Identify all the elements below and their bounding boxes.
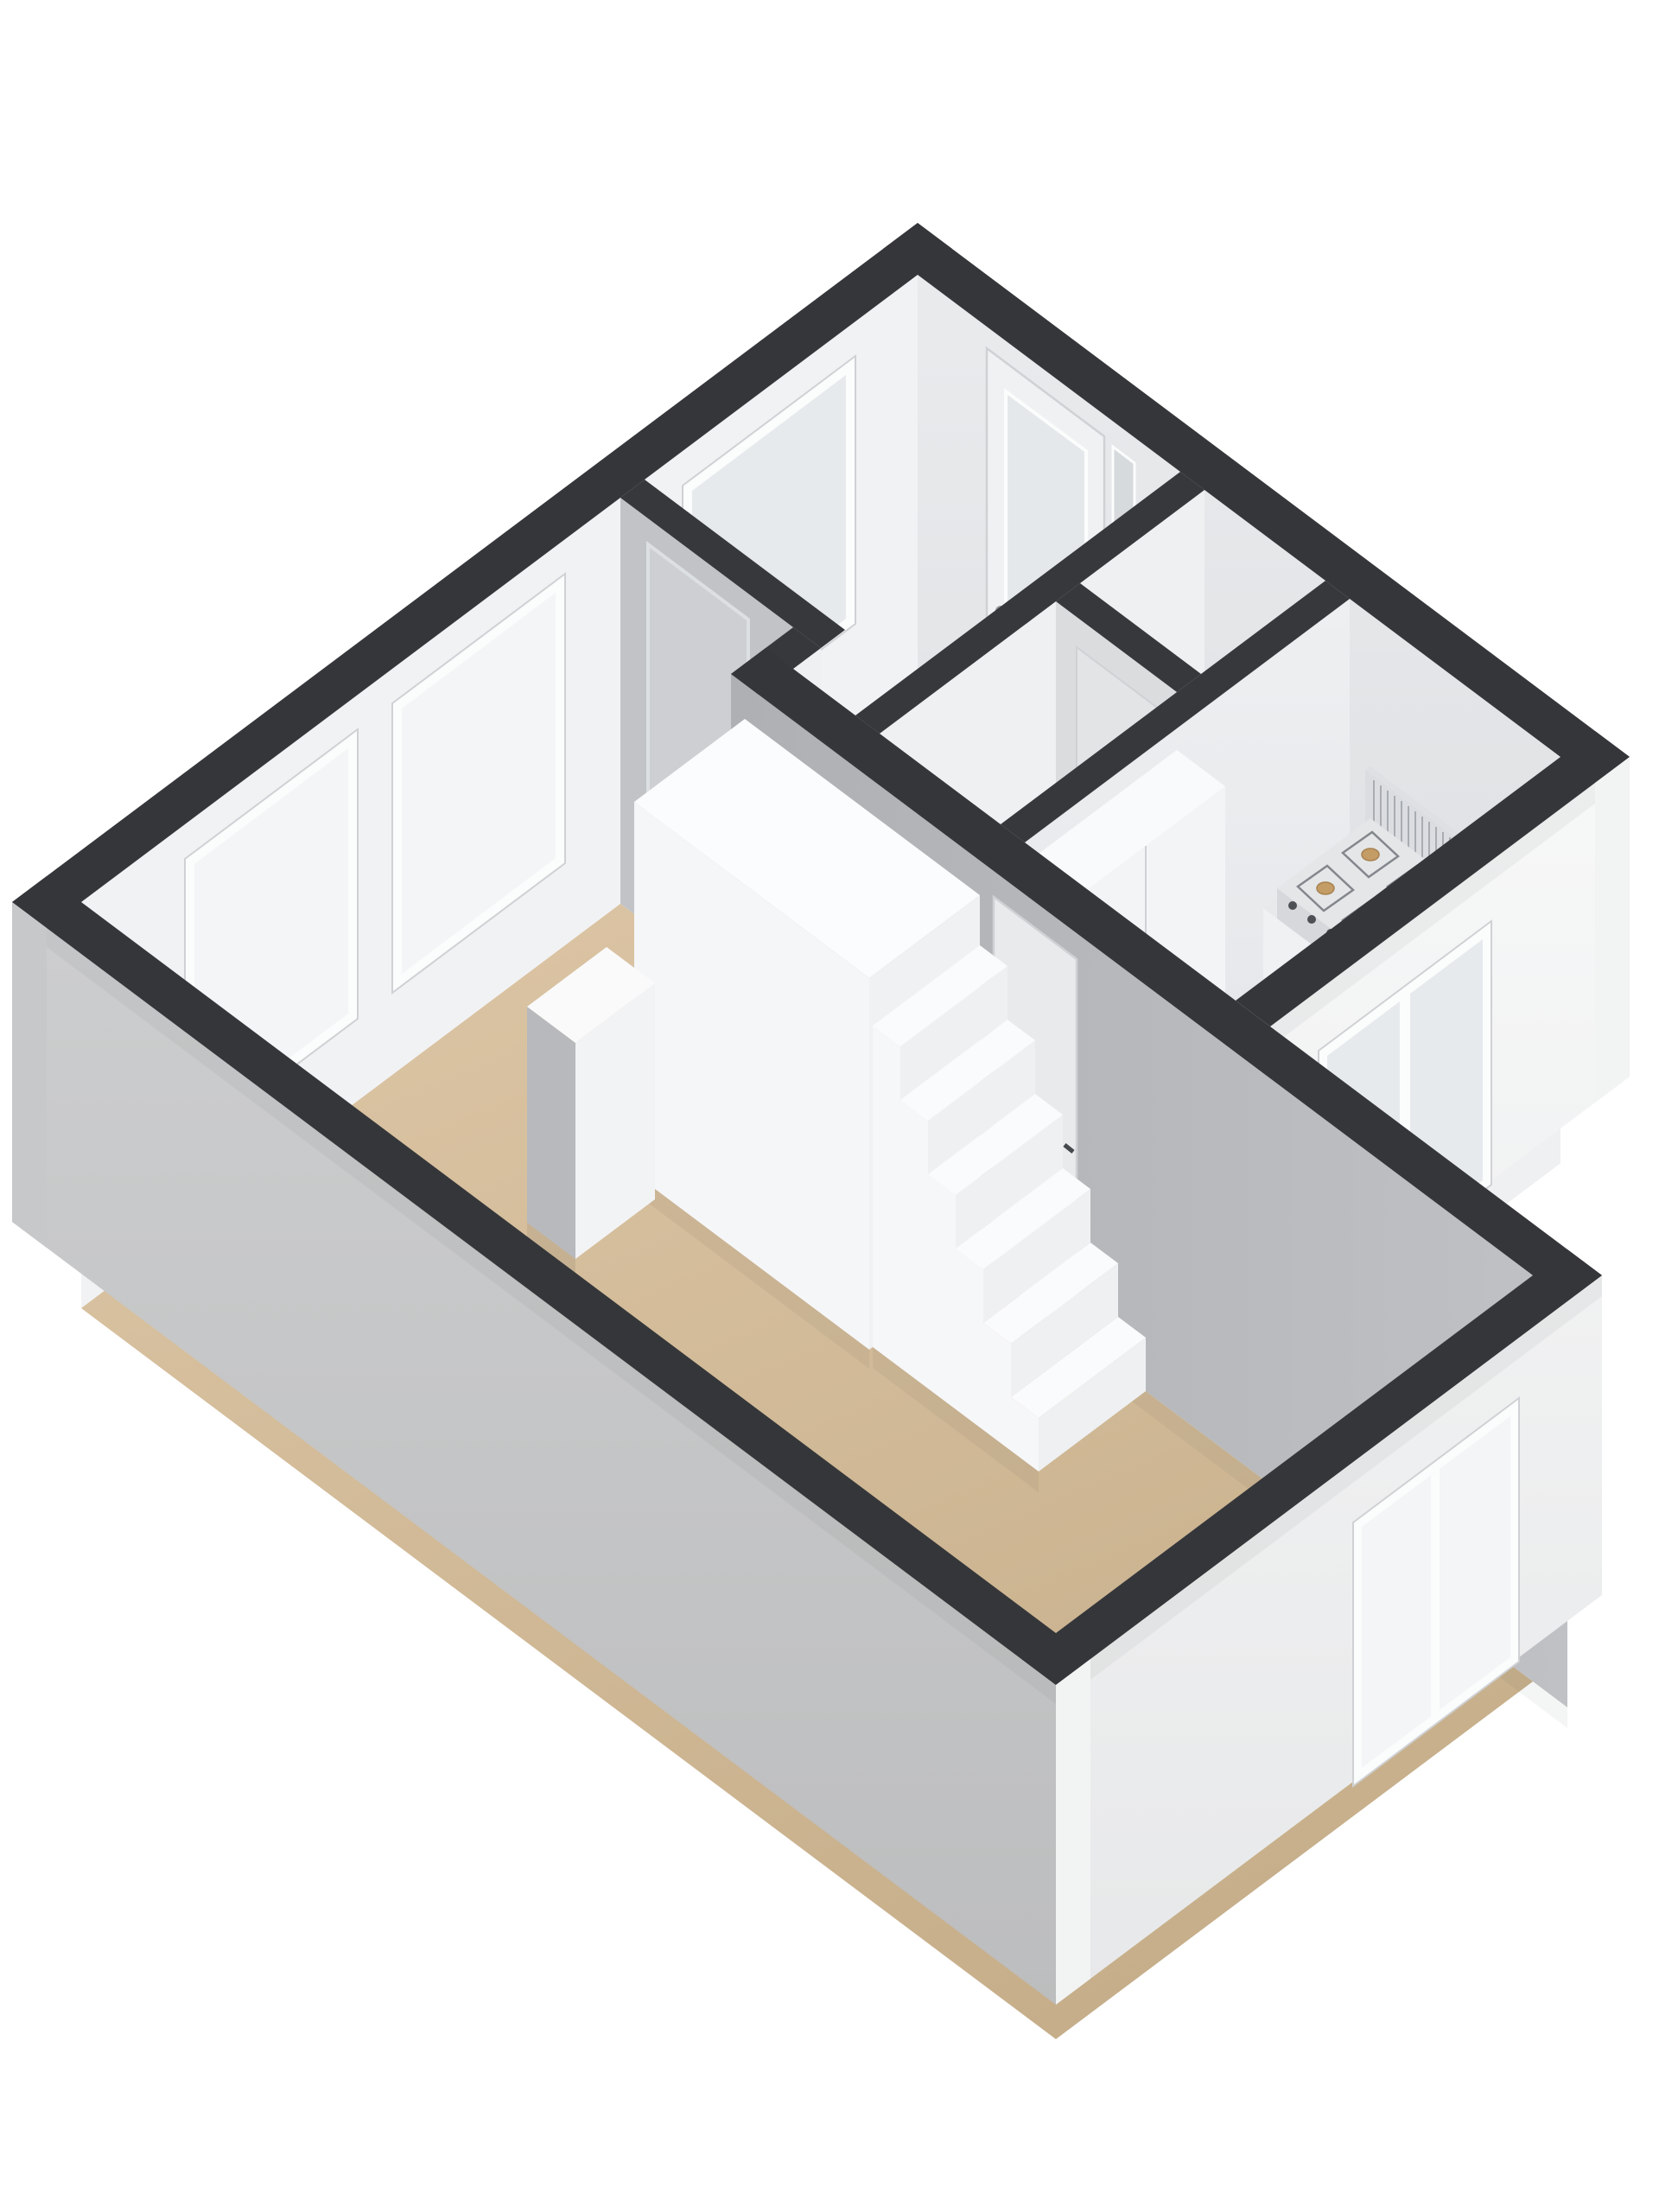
living-room-east-window-mullion xyxy=(1431,1469,1440,1717)
floorplan-canvas xyxy=(0,0,1659,2212)
floorplan-3d xyxy=(0,0,1659,2212)
exterior-wall-nw-end-sliver xyxy=(12,902,47,1248)
exterior-wall-ne-end-sliver xyxy=(1595,757,1630,1103)
exterior-wall-sw-end-sliver xyxy=(1056,1659,1090,2005)
pillar-side xyxy=(527,1007,575,1259)
